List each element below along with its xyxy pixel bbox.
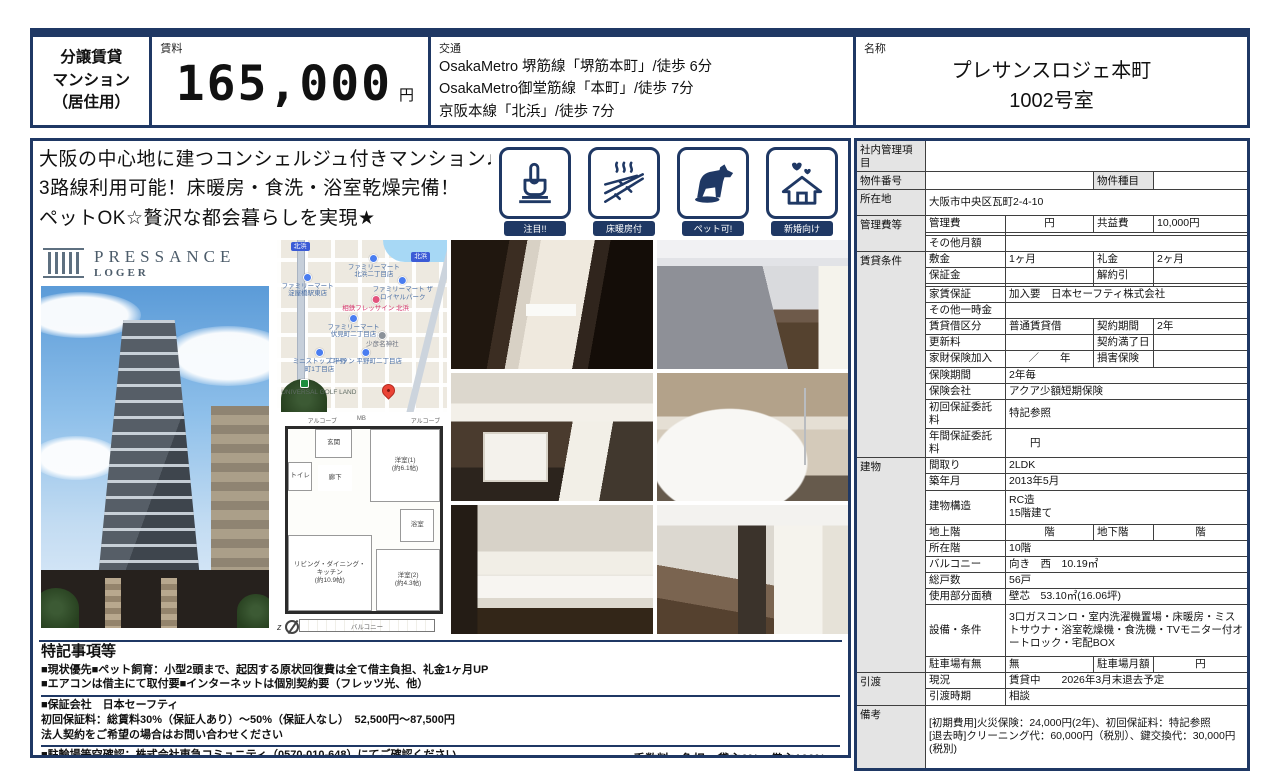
table-cell [926, 140, 1249, 172]
entrance-room: 玄関 [315, 429, 351, 458]
property-sheet: 分譲賃貸マンション（居住用） 賃料 165,000 円 交通 OsakaMetr… [0, 0, 1280, 765]
feature-label: 注目!! [504, 221, 566, 236]
table-cell: その他一時金 [926, 303, 1006, 319]
property-map-pin [380, 382, 398, 400]
poi-label: ファミリーマート 淀屋橋駅東店 [282, 283, 334, 298]
newlywed-house-icon [766, 147, 838, 219]
table-cell [1154, 351, 1249, 367]
table-cell: [初期費用]火災保険：24,000円(2年)、初回保証料：特記参照 [退去時]ク… [926, 705, 1249, 769]
text-line: 分譲賃貸 [60, 47, 122, 69]
table-cell: 物件番号 [856, 172, 926, 190]
mb-label: MB [357, 416, 366, 422]
table-cell: 2013年5月 [1006, 474, 1249, 490]
pet-ok-icon [677, 147, 749, 219]
table-cell: 家財保険加入 [926, 351, 1006, 367]
table-cell: 所在階 [926, 540, 1006, 556]
table-cell: 56戸 [1006, 572, 1249, 588]
neighbor-building [211, 406, 269, 588]
bedroom2: 洋室(2)(約4.3帖) [376, 549, 440, 611]
table-cell: 管理費 [926, 216, 1006, 232]
table-cell: 1ヶ月 [1006, 251, 1094, 267]
table-cell: 契約満了日 [1094, 335, 1154, 351]
property-table-body: 社内管理項目物件番号物件種目所在地大阪市中央区瓦町2-4-10管理費等管理費円共… [856, 140, 1249, 770]
table-cell: 保険期間 [926, 367, 1006, 383]
bedroom1: 洋室(1)(約6.1帖) [370, 429, 440, 502]
property-name: プレサンスロジェ本町1002号室 [864, 56, 1239, 116]
poi-pin-icon [349, 314, 358, 323]
north-arrow-icon [285, 620, 299, 634]
table-cell: 引渡時期 [926, 689, 1006, 705]
poi-label: ローソン 平野町二丁目店 [329, 358, 402, 365]
poi-pin-icon [398, 276, 407, 285]
table-row: 引渡現況賃貸中 2026年3月末退去予定 [856, 673, 1249, 689]
poi-pin-icon [371, 295, 380, 304]
table-cell: 大阪市中央区瓦町2-4-10 [926, 190, 1249, 216]
table-cell [1154, 267, 1249, 283]
photo-area: PRESSANCE LOGER [39, 238, 842, 636]
text-line: （居住用） [52, 92, 130, 114]
table-cell [1154, 172, 1249, 190]
table-row: 物件番号物件種目 [856, 172, 1249, 190]
poi-pin-icon [315, 348, 324, 357]
table-cell: 3口ガスコンロ・室内洗濯機置場・床暖房・ミストサウナ・浴室乾燥機・食洗機・TVモ… [1006, 605, 1249, 657]
table-cell: その他月額 [926, 235, 1006, 251]
feature-icons: 注目!! 床暖房付 [491, 147, 840, 236]
feature-floor-heating: 床暖房付 [586, 147, 662, 236]
building-exterior-photo [41, 286, 269, 628]
alcove-label: アルコーブ [411, 416, 440, 425]
feature-label: 新婚向け [771, 221, 833, 236]
logo-sub: LOGER [94, 267, 235, 279]
table-cell: 社内管理項目 [856, 140, 926, 172]
table-cell: 2年 [1154, 319, 1249, 335]
logo-brand: PRESSANCE [94, 247, 235, 267]
poi-pin-icon [378, 331, 387, 340]
table-cell: 特記参照 [1006, 399, 1249, 428]
table-cell: 使用部分面積 [926, 589, 1006, 605]
table-cell: 共益費 [1094, 216, 1154, 232]
text-line: 京阪本線「北浜」/徒歩 7分 [439, 101, 845, 123]
feature-label: 床暖房付 [593, 221, 655, 236]
table-cell: 2LDK [1006, 458, 1249, 474]
map-poi: ファミリーマート 北浜二丁目店 [348, 254, 400, 279]
rent-label: 賃料 [160, 40, 420, 56]
table-cell: 階 [1154, 524, 1249, 540]
notes-block-1: ■現状優先■ペット飼育：小型2頭まで、起因する原状回復費は全て借主負担、礼金1ヶ… [41, 662, 840, 695]
rent-unit: 円 [399, 84, 414, 105]
property-table: 社内管理項目物件番号物件種目所在地大阪市中央区瓦町2-4-10管理費等管理費円共… [854, 138, 1250, 771]
table-cell: 賃貸条件 [856, 251, 926, 458]
text-line: ■保証会社 日本セーフティ [41, 698, 840, 713]
table-cell: ／ 年 [1006, 351, 1094, 367]
poi-pin-icon [369, 254, 378, 263]
interior-photos [451, 240, 851, 634]
transit-box: 交通 OsakaMetro 堺筋線「堺筋本町」/徒歩 6分OsakaMetro御… [431, 37, 856, 125]
table-cell: 円 [1006, 216, 1094, 232]
map-poi: UNIVERSAL GOLF LAND [281, 379, 327, 412]
rent-box: 賃料 165,000 円 [152, 37, 431, 125]
table-cell: 向き 西 10.19㎡ [1006, 556, 1249, 572]
map-poi: ローソン 平野町二丁目店 [329, 348, 402, 365]
table-cell: 解約引 [1094, 267, 1154, 283]
poi-label: UNIVERSAL GOLF LAND [281, 389, 327, 396]
table-cell [1154, 335, 1249, 351]
table-cell: 10,000円 [1154, 216, 1249, 232]
feature-attention: 注目!! [497, 147, 573, 236]
floor-heating-icon [588, 147, 660, 219]
attention-hand-icon [499, 147, 571, 219]
table-cell: 現況 [926, 673, 1006, 689]
photo-kitchen-counter [451, 505, 653, 634]
map-poi: 相鉄フレッサイン 北浜 [342, 295, 409, 312]
table-cell: バルコニー [926, 556, 1006, 572]
text-line: プレサンスロジェ本町 [864, 56, 1239, 86]
photo-washroom [451, 240, 653, 369]
table-cell: 年間保証委託料 [926, 429, 1006, 458]
table-cell: 築年月 [926, 474, 1006, 490]
table-cell: 駐車場月額 [1094, 657, 1154, 673]
table-cell: 円 [1006, 429, 1249, 458]
table-cell [1006, 267, 1094, 283]
fees-note: ■手数料 負担：貸主0% 借主100%分配：元付0% 客付100% [626, 747, 840, 758]
transit-label: 交通 [439, 40, 845, 56]
poi-pin-icon [303, 273, 312, 282]
table-cell: 間取り [926, 458, 1006, 474]
table-cell: 損害保険 [1094, 351, 1154, 367]
table-cell: 敷金 [926, 251, 1006, 267]
table-row: 所在地大阪市中央区瓦町2-4-10 [856, 190, 1249, 216]
table-row: 賃貸条件敷金1ヶ月礼金2ヶ月 [856, 251, 1249, 267]
table-cell: 賃貸借区分 [926, 319, 1006, 335]
table-cell: アクア少額短期保険 [1006, 383, 1249, 399]
text-line: OsakaMetro 堺筋線「堺筋本町」/徒歩 6分 [439, 56, 845, 78]
table-cell [1006, 235, 1249, 251]
text-line: マンション [52, 70, 130, 92]
table-row: 管理費等管理費円共益費10,000円 [856, 216, 1249, 232]
bathroom: 浴室 [400, 509, 433, 542]
table-cell: 備考 [856, 705, 926, 769]
table-cell: 普通賃貸借 [1006, 319, 1094, 335]
photo-living-balcony [657, 505, 851, 634]
table-cell: 10階 [1006, 540, 1249, 556]
table-cell: 無 [1006, 657, 1094, 673]
poi-pin-icon [361, 348, 370, 357]
table-cell: 壁芯 53.10㎡(16.06坪) [1006, 589, 1249, 605]
special-notes: 特記事項等 ■現状優先■ペット飼育：小型2頭まで、起因する原状回復費は全て借主負… [39, 640, 842, 758]
left-panel: 大阪の中心地に建つコンシェルジュ付きマンション♪3路線利用可能！床暖房・食洗・浴… [30, 138, 851, 758]
feature-label: ペット可! [682, 221, 744, 236]
table-cell: 地下階 [1094, 524, 1154, 540]
poi-pin-icon [300, 379, 309, 388]
notes-title: 特記事項等 [41, 643, 840, 662]
text-line: 法人契約をご希望の場合はお問い合わせください [41, 728, 840, 743]
name-label: 名称 [864, 40, 1239, 56]
table-cell: 保証金 [926, 267, 1006, 283]
balcony: バルコニー [299, 619, 435, 632]
table-cell: 2年毎 [1006, 367, 1249, 383]
table-row: 建物間取り2LDK [856, 458, 1249, 474]
alcove-label: アルコーブ [308, 416, 337, 425]
table-cell: 加入要 日本セーフティ株式会社 [1006, 286, 1249, 302]
text-line: ■エアコンは借主にて取付要■インターネットは個別契約要（フレッツ光、他） [41, 677, 840, 692]
table-cell: 地上階 [926, 524, 1006, 540]
feature-pet-ok: ペット可! [675, 147, 751, 236]
floor-plan-walls: 玄関 トイレ 廊下 洋室(1)(約6.1帖) 浴室 リビング・ダイニング・キッチ… [285, 426, 443, 614]
table-cell: 賃貸中 2026年3月末退去予定 [1006, 673, 1249, 689]
text-line: ■駐輪場等空確認：株式会社東急コミュニティ（0570-010-648）にてご確認… [41, 748, 457, 758]
notes-block-3: ■駐輪場等空確認：株式会社東急コミュニティ（0570-010-648）にてご確認… [41, 747, 457, 758]
table-cell: 駐車場有無 [926, 657, 1006, 673]
table-cell: 初回保証委託料 [926, 399, 1006, 428]
table-cell: 円 [1154, 657, 1249, 673]
table-cell: 相談 [1006, 689, 1249, 705]
table-cell: 所在地 [856, 190, 926, 216]
station-badge: 北浜 [411, 252, 430, 262]
feature-newlywed: 新婚向け [764, 147, 840, 236]
station-badge: 北浜 [291, 242, 310, 252]
photo-living-room [657, 240, 851, 369]
table-cell: 引渡 [856, 673, 926, 705]
floor-plan: アルコーブ MB アルコーブ 玄関 トイレ 廊下 洋室(1)(約6.1帖) 浴室 [277, 416, 447, 634]
table-cell: 家賃保証 [926, 286, 1006, 302]
map-poi: 少彦名神社 [366, 331, 399, 348]
compass: z [277, 620, 299, 634]
table-cell: 保険会社 [926, 383, 1006, 399]
text-line: 初回保証料：総賃料30%（保証人あり）～50%（保証人なし） 52,500円～8… [41, 713, 840, 728]
logo-bars-icon [43, 248, 84, 278]
table-cell: 階 [1006, 524, 1094, 540]
header: 分譲賃貸マンション（居住用） 賃料 165,000 円 交通 OsakaMetr… [30, 28, 1250, 128]
ldk-room: リビング・ダイニング・キッチン(約10.9帖) [288, 535, 372, 611]
notes-block-2: ■保証会社 日本セーフティ初回保証料：総賃料30%（保証人あり）～50%（保証人… [41, 695, 840, 745]
toilet-room: トイレ [288, 462, 312, 491]
text-line: OsakaMetro御堂筋線「本町」/徒歩 7分 [439, 78, 845, 100]
table-cell: 総戸数 [926, 572, 1006, 588]
table-cell: 更新料 [926, 335, 1006, 351]
table-cell: 契約期間 [1094, 319, 1154, 335]
table-cell [926, 172, 1094, 190]
table-cell: 物件種目 [1094, 172, 1154, 190]
text-line: ■手数料 負担：貸主0% 借主100% [626, 750, 832, 758]
photo-kitchen-dishwasher [451, 373, 653, 502]
poi-label: 相鉄フレッサイン 北浜 [342, 305, 409, 312]
hall: 廊下 [318, 465, 351, 490]
table-cell: 建物 [856, 458, 926, 673]
pressance-logo: PRESSANCE LOGER [41, 240, 273, 286]
property-name-box: 名称 プレサンスロジェ本町1002号室 [856, 37, 1247, 125]
table-row: 社内管理項目 [856, 140, 1249, 172]
photo-bathroom [657, 373, 851, 502]
table-cell: 2ヶ月 [1154, 251, 1249, 267]
table-cell: 管理費等 [856, 216, 926, 251]
transit-lines: OsakaMetro 堺筋線「堺筋本町」/徒歩 6分OsakaMetro御堂筋線… [439, 56, 845, 123]
table-cell [1006, 335, 1094, 351]
table-cell [1006, 303, 1249, 319]
text-line: 1002号室 [864, 86, 1239, 116]
map-poi: ファミリーマート 淀屋橋駅東店 [282, 273, 334, 298]
text-line: ■現状優先■ペット飼育：小型2頭まで、起因する原状回復費は全て借主負担、礼金1ヶ… [41, 663, 840, 678]
table-cell: RC造 15階建て [1006, 490, 1249, 524]
table-row: 備考[初期費用]火災保険：24,000円(2年)、初回保証料：特記参照 [退去時… [856, 705, 1249, 769]
location-map: 北浜 北浜 ファミリーマート 北浜二丁目店ファミリーマート 淀屋橋駅東店ファミリ… [277, 240, 447, 412]
property-type-box: 分譲賃貸マンション（居住用） [33, 37, 152, 125]
table-cell: 建物構造 [926, 490, 1006, 524]
rent-value: 165,000 [176, 56, 392, 112]
diagonal-road [399, 240, 447, 412]
table-cell: 礼金 [1094, 251, 1154, 267]
table-cell: 設備・条件 [926, 605, 1006, 657]
